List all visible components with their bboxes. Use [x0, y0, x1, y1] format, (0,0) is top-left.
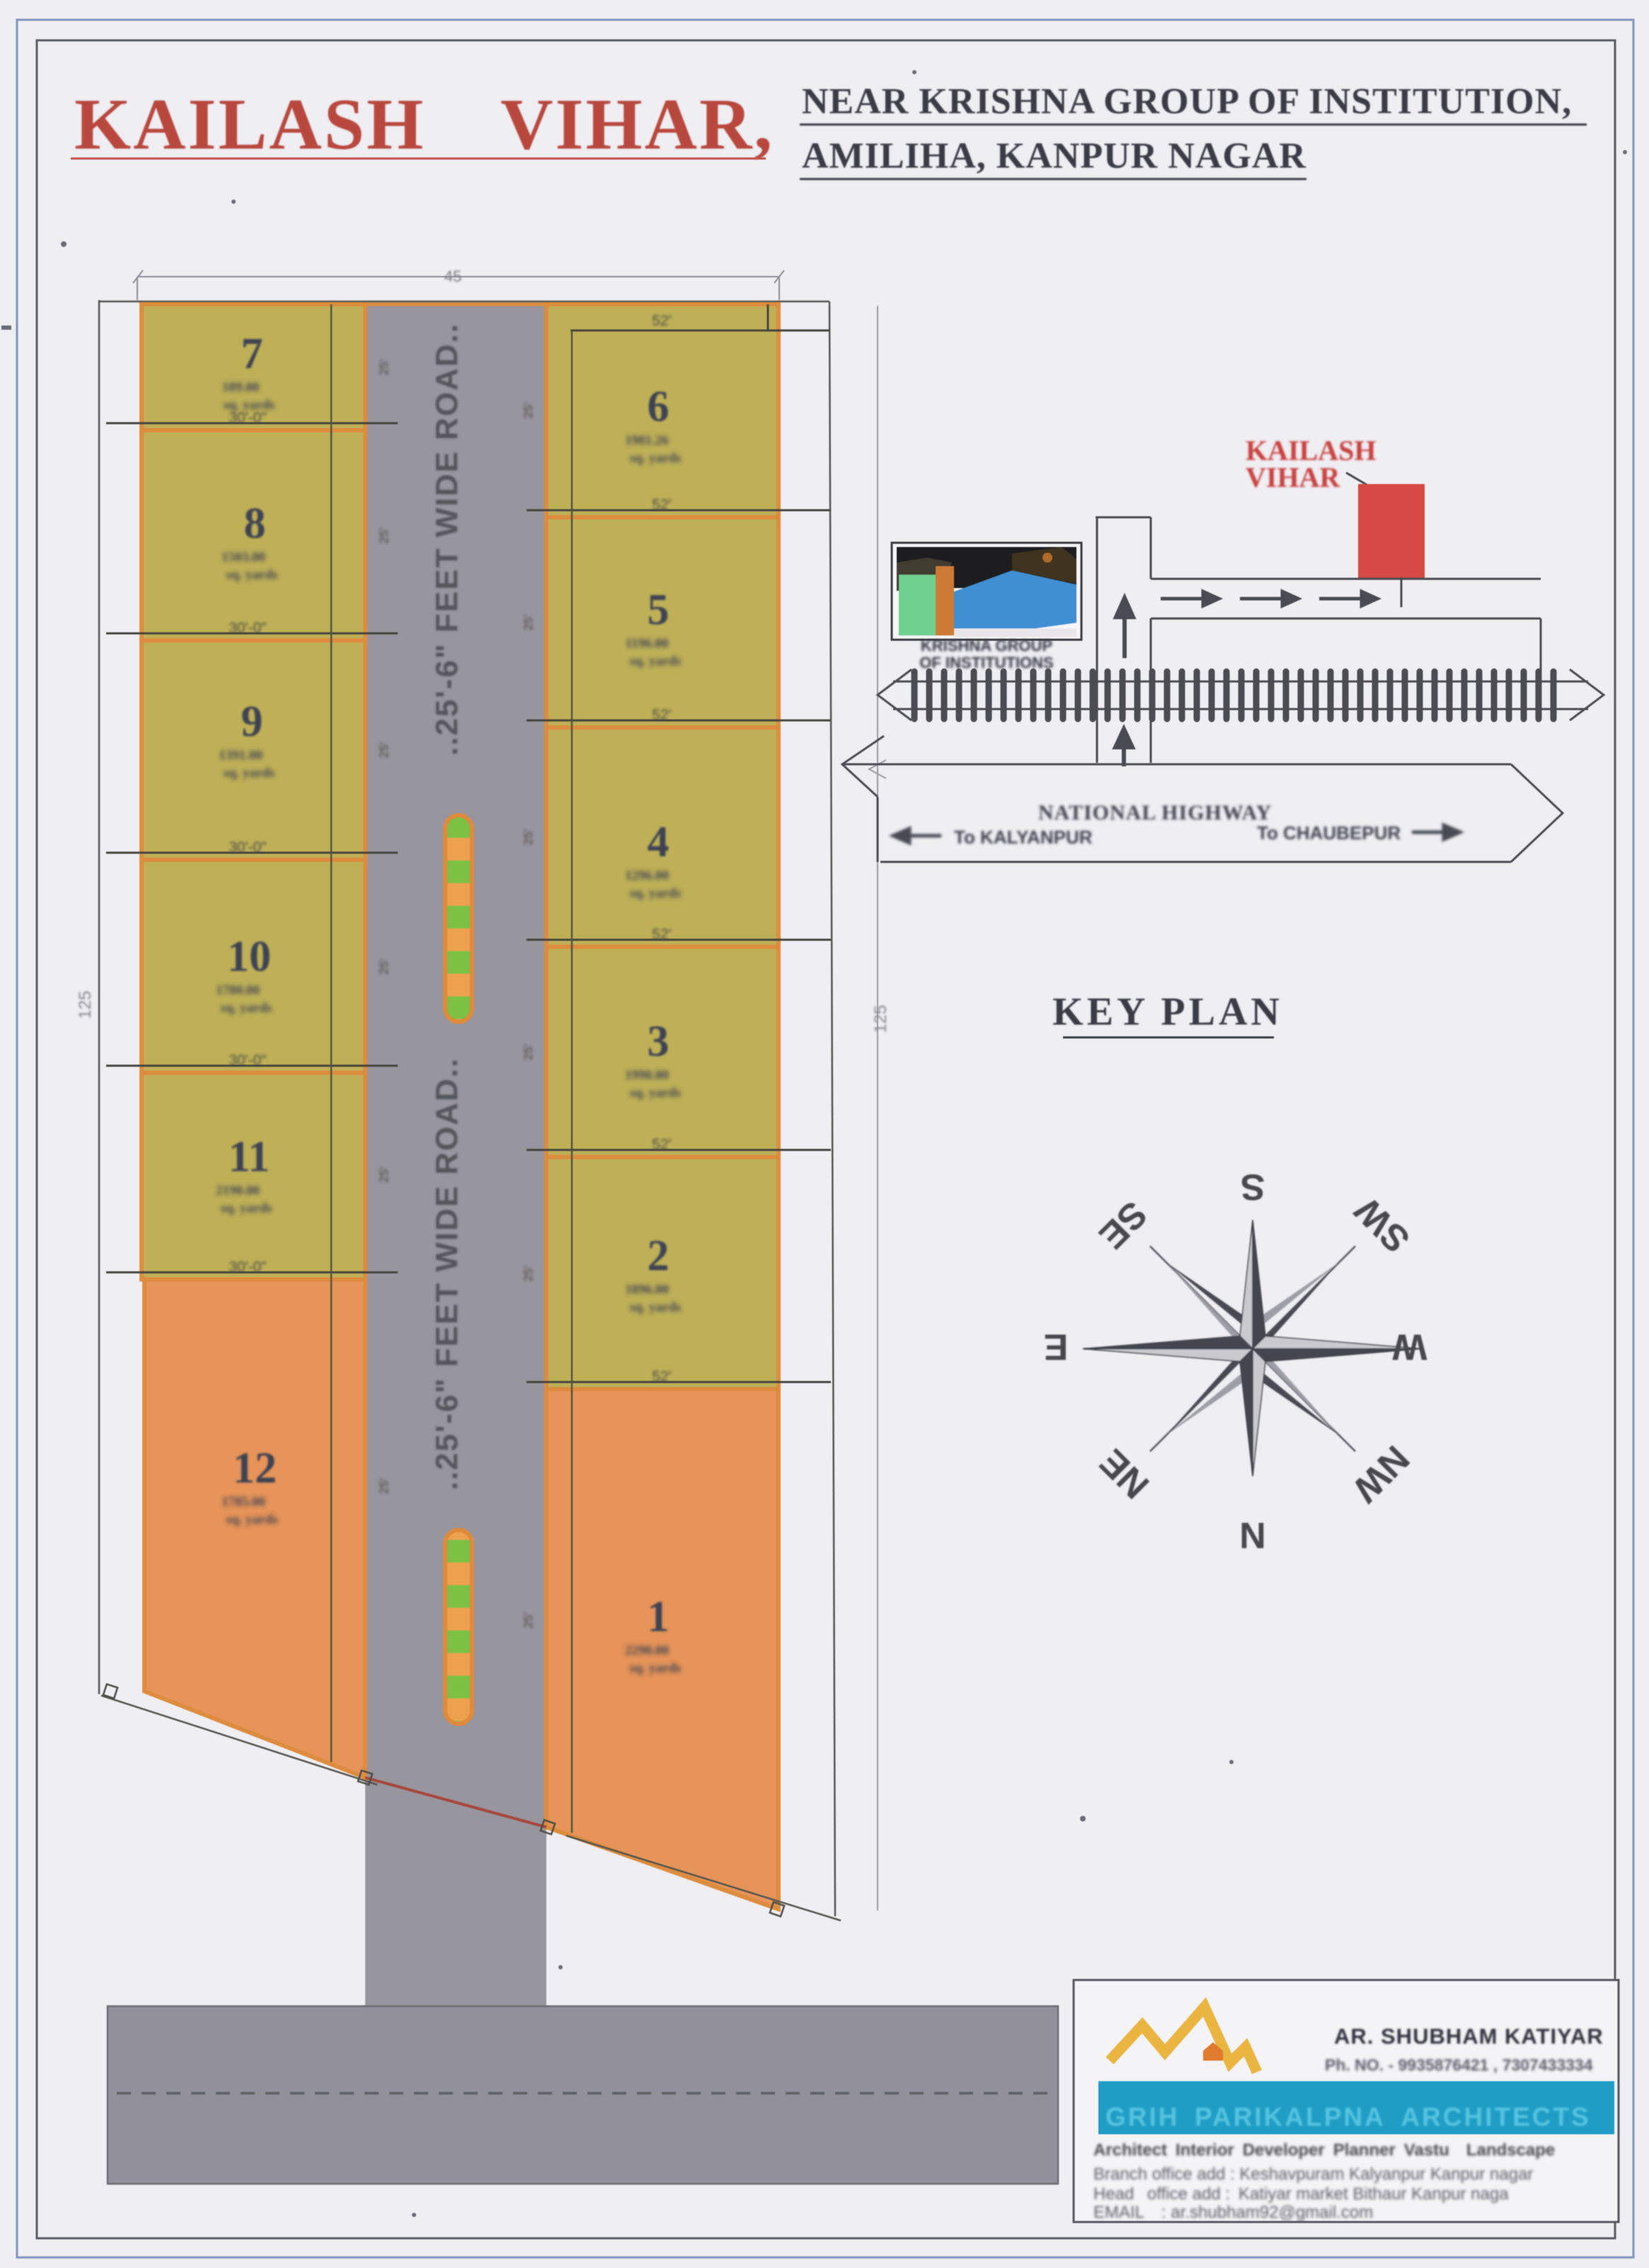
- svg-text:1990.00: 1990.00: [625, 1068, 669, 1083]
- svg-text:1896.00: 1896.00: [625, 1282, 669, 1297]
- svg-text:sq. yards: sq. yards: [224, 766, 275, 781]
- svg-text:1503.00: 1503.00: [222, 550, 265, 565]
- svg-text:VIHAR: VIHAR: [1246, 461, 1340, 493]
- svg-text:125: 125: [871, 1005, 890, 1033]
- svg-text:2: 2: [648, 1232, 670, 1280]
- svg-text:NEAR KRISHNA GROUP OF INSTITUT: NEAR KRISHNA GROUP OF INSTITUTION,: [802, 81, 1572, 122]
- svg-text:1391.00: 1391.00: [219, 748, 263, 763]
- svg-text:AR. SHUBHAM KATIYAR: AR. SHUBHAM KATIYAR: [1334, 2024, 1604, 2049]
- svg-text:To KALYANPUR: To KALYANPUR: [954, 827, 1093, 848]
- svg-text:25': 25': [522, 1613, 535, 1628]
- svg-text:2290.00: 2290.00: [625, 1643, 669, 1658]
- svg-text:EMAIL : ar.shubham92@gmail.co: EMAIL : ar.shubham92@gmail.com: [1093, 2203, 1373, 2222]
- svg-text:sq. yards: sq. yards: [226, 568, 278, 582]
- svg-text:sq. yards: sq. yards: [630, 1661, 682, 1676]
- svg-text:sq. yards: sq. yards: [630, 451, 682, 466]
- svg-text:NW: NW: [1344, 1437, 1417, 1510]
- svg-text:sq. yards: sq. yards: [630, 1086, 682, 1100]
- svg-text:sq. yards: sq. yards: [226, 1512, 278, 1527]
- svg-text:9: 9: [241, 698, 263, 746]
- svg-text:25': 25': [377, 528, 391, 543]
- svg-text:W: W: [1392, 1326, 1427, 1367]
- svg-text:52': 52': [652, 313, 671, 329]
- svg-text:To CHAUBEPUR: To CHAUBEPUR: [1257, 822, 1401, 844]
- svg-text:11: 11: [229, 1133, 270, 1181]
- svg-text:52': 52': [652, 926, 671, 943]
- svg-text:sq. yards: sq. yards: [630, 654, 682, 669]
- svg-text:N: N: [1239, 1514, 1266, 1555]
- svg-text:KAILASH VIHAR,: KAILASH VIHAR,: [74, 84, 774, 165]
- svg-text:3: 3: [648, 1018, 670, 1066]
- svg-text:25': 25': [377, 1478, 391, 1494]
- svg-text:125: 125: [76, 991, 95, 1019]
- svg-text:30'-0": 30'-0": [229, 1052, 267, 1069]
- svg-text:189.00: 189.00: [222, 380, 259, 395]
- svg-text:25': 25': [522, 1266, 535, 1282]
- svg-text:45: 45: [444, 267, 461, 285]
- svg-text:E: E: [1044, 1326, 1069, 1367]
- svg-text:..25'-6" FEET WIDE ROAD..: ..25'-6" FEET WIDE ROAD..: [430, 1057, 464, 1490]
- svg-text:1981.26: 1981.26: [625, 433, 669, 448]
- svg-text:1296.00: 1296.00: [625, 868, 669, 883]
- svg-text:30'-0": 30'-0": [229, 620, 267, 636]
- svg-text:25': 25': [522, 615, 535, 631]
- svg-text:sq. yards: sq. yards: [630, 886, 682, 901]
- svg-text:NE: NE: [1092, 1441, 1157, 1506]
- svg-text:GRIH PARIKALPNA ARCHITECTS: GRIH PARIKALPNA ARCHITECTS: [1105, 2102, 1591, 2131]
- svg-text:25': 25': [522, 829, 535, 845]
- svg-text:2190.00: 2190.00: [216, 1183, 260, 1198]
- svg-text:25': 25': [522, 403, 535, 418]
- svg-text:KRISHNA GROUP: KRISHNA GROUP: [921, 637, 1052, 655]
- svg-text:Branch office add : Keshavpura: Branch office add : Keshavpuram Kalyanpu…: [1093, 2165, 1533, 2184]
- svg-text:KEY PLAN: KEY PLAN: [1052, 990, 1283, 1034]
- svg-text:SW: SW: [1347, 1189, 1418, 1260]
- svg-text:sq. yards: sq. yards: [630, 1300, 682, 1315]
- svg-text:52': 52': [652, 707, 671, 723]
- svg-text:30'-0": 30'-0": [229, 839, 267, 856]
- svg-text:..25'-6" FEET WIDE ROAD..: ..25'-6" FEET WIDE ROAD..: [430, 323, 464, 756]
- svg-text:8: 8: [244, 500, 266, 548]
- svg-text:52': 52': [652, 497, 671, 513]
- svg-text:25': 25': [522, 1044, 535, 1060]
- svg-text:S: S: [1241, 1166, 1265, 1207]
- svg-text:Architect Interior Developer P: Architect Interior Developer Planner Vas…: [1093, 2141, 1555, 2160]
- svg-text:25': 25': [377, 359, 391, 375]
- svg-text:1: 1: [648, 1593, 670, 1641]
- svg-text:30'-0": 30'-0": [229, 1259, 267, 1275]
- svg-text:AMILIHA, KANPUR NAGAR: AMILIHA, KANPUR NAGAR: [802, 136, 1306, 176]
- svg-text:sq. yards: sq. yards: [221, 1001, 272, 1015]
- svg-text:6: 6: [648, 383, 670, 431]
- svg-text:25': 25': [377, 1167, 391, 1182]
- svg-text:1785.00: 1785.00: [222, 1495, 265, 1509]
- svg-text:5: 5: [648, 586, 670, 634]
- svg-text:sq. yards: sq. yards: [221, 1201, 272, 1216]
- svg-text:Head office add : Katiyar mar: Head office add : Katiyar market Bithaur…: [1093, 2184, 1509, 2204]
- svg-text:25': 25': [377, 959, 391, 974]
- svg-text:52': 52': [652, 1136, 671, 1153]
- svg-text:1196.00: 1196.00: [626, 636, 669, 651]
- svg-text:10: 10: [227, 933, 271, 981]
- svg-text:Ph. NO. - 9935876421 , 7307433: Ph. NO. - 9935876421 , 7307433334: [1325, 2056, 1593, 2074]
- svg-text:sq. yards: sq. yards: [224, 398, 275, 413]
- svg-text:NATIONAL HIGHWAY: NATIONAL HIGHWAY: [1038, 801, 1272, 824]
- svg-text:7: 7: [241, 330, 263, 378]
- svg-text:SE: SE: [1091, 1193, 1154, 1257]
- svg-text:25': 25': [377, 742, 391, 758]
- svg-text:1780.00: 1780.00: [216, 983, 260, 998]
- svg-text:52': 52': [652, 1369, 671, 1385]
- svg-text:4: 4: [648, 818, 670, 866]
- svg-text:12: 12: [233, 1444, 277, 1492]
